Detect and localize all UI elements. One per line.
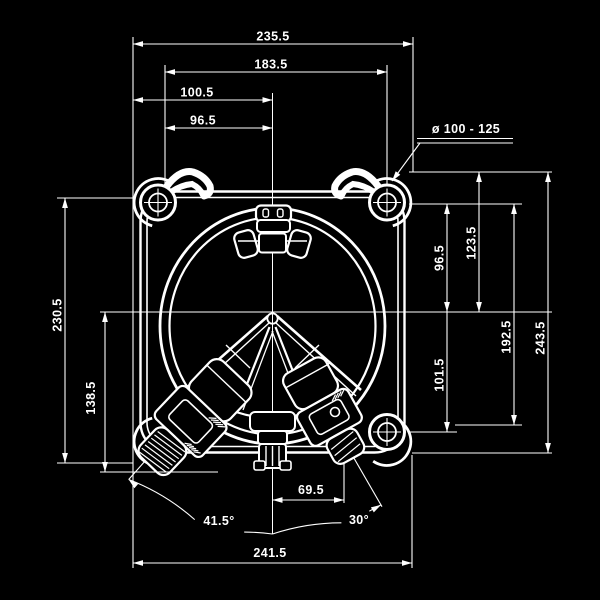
svg-text:30°: 30° xyxy=(349,513,369,527)
svg-text:243.5: 243.5 xyxy=(534,321,548,354)
svg-text:96.5: 96.5 xyxy=(433,245,447,271)
svg-text:235.5: 235.5 xyxy=(256,30,289,44)
svg-text:100.5: 100.5 xyxy=(180,86,213,100)
svg-text:230.5: 230.5 xyxy=(51,298,65,331)
svg-text:241.5: 241.5 xyxy=(253,546,286,560)
svg-text:138.5: 138.5 xyxy=(84,381,98,414)
svg-text:41.5°: 41.5° xyxy=(203,514,234,528)
svg-text:69.5: 69.5 xyxy=(298,483,324,497)
svg-text:192.5: 192.5 xyxy=(500,320,514,353)
svg-text:96.5: 96.5 xyxy=(190,114,216,128)
svg-text:ø 100 - 125: ø 100 - 125 xyxy=(432,122,500,136)
svg-text:101.5: 101.5 xyxy=(433,358,447,391)
svg-text:123.5: 123.5 xyxy=(465,226,479,259)
svg-text:183.5: 183.5 xyxy=(254,58,287,72)
